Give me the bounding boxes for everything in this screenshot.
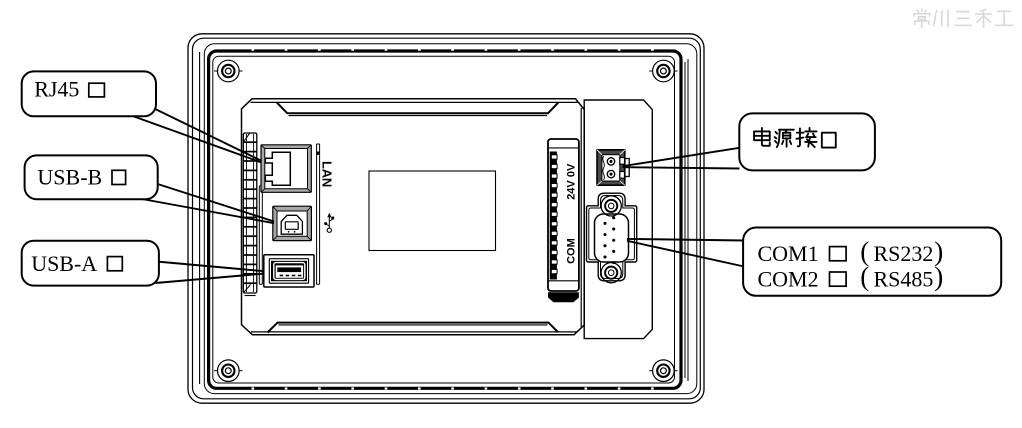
svg-text:24V 0V: 24V 0V [566,163,578,200]
svg-text:USB-A: USB-A [31,251,97,276]
svg-text:RJ45: RJ45 [34,77,79,102]
svg-text:COM1: COM1 [758,241,819,266]
svg-text:USB-B: USB-B [37,165,102,190]
svg-text:RS232: RS232 [874,241,934,266]
svg-text:COM2: COM2 [758,266,819,291]
svg-text:LAN: LAN [320,161,335,187]
svg-text:(: ( [860,262,869,292]
svg-text:COM: COM [566,238,578,264]
svg-text:RS485: RS485 [874,266,934,291]
svg-text:): ) [934,262,943,292]
